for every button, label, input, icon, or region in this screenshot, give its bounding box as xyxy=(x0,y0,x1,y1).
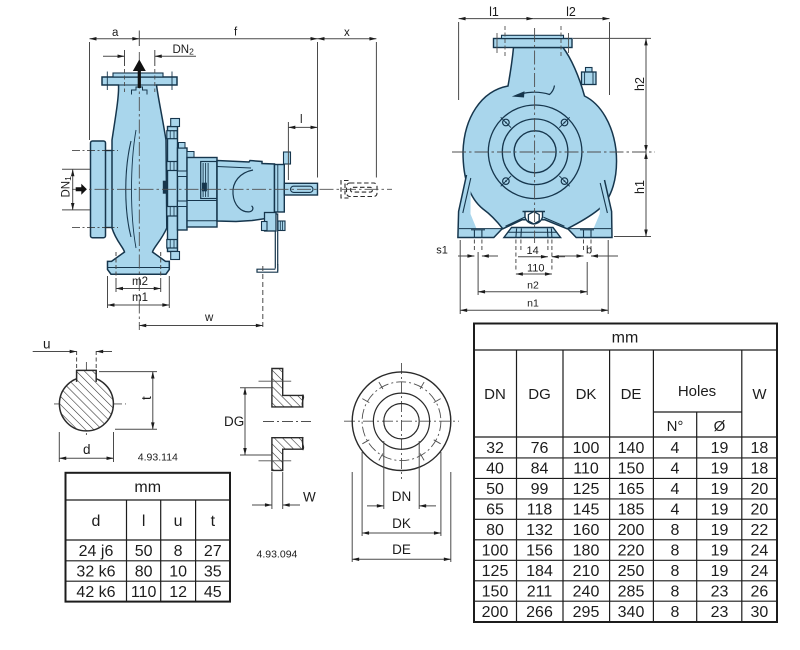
svg-text:184: 184 xyxy=(526,563,553,580)
svg-text:DN1: DN1 xyxy=(61,176,74,198)
svg-text:DG: DG xyxy=(528,386,551,403)
svg-text:Holes: Holes xyxy=(678,383,716,400)
svg-text:f: f xyxy=(234,27,238,39)
svg-text:19: 19 xyxy=(711,502,729,519)
svg-text:14: 14 xyxy=(527,245,539,257)
svg-text:n2: n2 xyxy=(527,280,539,292)
svg-text:22: 22 xyxy=(751,522,769,539)
svg-text:m1: m1 xyxy=(132,292,148,304)
svg-text:99: 99 xyxy=(531,481,549,498)
svg-text:132: 132 xyxy=(526,522,553,539)
svg-text:200: 200 xyxy=(482,604,509,621)
svg-text:19: 19 xyxy=(711,563,729,580)
svg-text:t: t xyxy=(139,396,154,400)
svg-text:118: 118 xyxy=(527,502,553,519)
svg-text:32: 32 xyxy=(486,440,504,457)
svg-text:50: 50 xyxy=(135,543,153,560)
svg-text:4: 4 xyxy=(671,502,680,519)
svg-text:250: 250 xyxy=(618,563,645,580)
svg-text:8: 8 xyxy=(174,543,183,560)
svg-text:DG: DG xyxy=(224,414,244,429)
svg-text:35: 35 xyxy=(204,564,222,581)
svg-text:h2: h2 xyxy=(633,77,647,91)
svg-text:19: 19 xyxy=(711,461,729,478)
svg-text:8: 8 xyxy=(671,563,680,580)
svg-text:19: 19 xyxy=(711,543,729,560)
svg-text:W: W xyxy=(752,386,767,403)
svg-text:80: 80 xyxy=(486,522,504,539)
svg-text:140: 140 xyxy=(618,440,645,457)
svg-text:8: 8 xyxy=(671,604,680,621)
svg-text:23: 23 xyxy=(711,604,729,621)
svg-text:266: 266 xyxy=(526,604,553,621)
svg-text:32 k6: 32 k6 xyxy=(76,564,115,581)
svg-text:DK: DK xyxy=(576,386,597,403)
svg-text:20: 20 xyxy=(751,481,769,498)
svg-text:100: 100 xyxy=(573,440,600,457)
svg-text:DN2: DN2 xyxy=(173,44,195,57)
svg-text:125: 125 xyxy=(482,563,509,580)
svg-text:24: 24 xyxy=(751,543,769,560)
svg-text:4.93.114: 4.93.114 xyxy=(138,452,178,464)
svg-text:76: 76 xyxy=(531,440,549,457)
svg-text:u: u xyxy=(174,513,183,530)
svg-text:210: 210 xyxy=(573,563,600,580)
svg-text:mm: mm xyxy=(612,330,639,347)
svg-text:160: 160 xyxy=(573,522,600,539)
svg-text:240: 240 xyxy=(573,584,600,601)
svg-text:Ø: Ø xyxy=(714,418,726,435)
svg-text:150: 150 xyxy=(618,461,645,478)
svg-text:u: u xyxy=(43,337,51,352)
svg-text:30: 30 xyxy=(751,604,769,621)
svg-text:DE: DE xyxy=(392,542,411,557)
svg-text:x: x xyxy=(344,27,350,39)
svg-text:4: 4 xyxy=(671,461,680,478)
svg-text:d: d xyxy=(83,442,91,457)
svg-text:10: 10 xyxy=(169,564,187,581)
svg-text:18: 18 xyxy=(751,440,769,457)
svg-text:s1: s1 xyxy=(436,245,448,257)
svg-text:8: 8 xyxy=(671,522,680,539)
svg-text:340: 340 xyxy=(618,604,645,621)
svg-text:50: 50 xyxy=(486,481,504,498)
svg-text:4: 4 xyxy=(671,440,680,457)
svg-text:200: 200 xyxy=(618,522,645,539)
svg-text:27: 27 xyxy=(204,543,222,560)
svg-text:295: 295 xyxy=(573,604,600,621)
svg-text:W: W xyxy=(303,490,316,505)
svg-text:d: d xyxy=(92,513,101,530)
svg-text:20: 20 xyxy=(751,502,769,519)
svg-text:42 k6: 42 k6 xyxy=(76,584,115,601)
svg-text:l: l xyxy=(142,513,146,530)
svg-text:19: 19 xyxy=(711,440,729,457)
svg-text:18: 18 xyxy=(751,461,769,478)
svg-text:40: 40 xyxy=(486,461,504,478)
svg-text:45: 45 xyxy=(204,584,222,601)
svg-text:100: 100 xyxy=(482,543,509,560)
svg-text:24: 24 xyxy=(751,563,769,580)
svg-text:DN: DN xyxy=(484,386,506,403)
svg-text:65: 65 xyxy=(486,502,504,519)
svg-text:24 j6: 24 j6 xyxy=(79,543,114,560)
svg-text:t: t xyxy=(211,513,216,530)
svg-text:165: 165 xyxy=(618,481,645,498)
svg-text:156: 156 xyxy=(526,543,553,560)
svg-text:110: 110 xyxy=(131,584,157,601)
svg-text:84: 84 xyxy=(531,461,549,478)
svg-text:185: 185 xyxy=(618,502,645,519)
svg-text:w: w xyxy=(204,312,214,324)
svg-text:26: 26 xyxy=(751,584,769,601)
svg-text:l2: l2 xyxy=(566,5,576,19)
svg-text:150: 150 xyxy=(482,584,509,601)
svg-text:23: 23 xyxy=(711,584,729,601)
svg-text:110: 110 xyxy=(573,461,599,478)
svg-text:4: 4 xyxy=(671,481,680,498)
svg-text:a: a xyxy=(112,27,119,39)
svg-text:19: 19 xyxy=(711,481,729,498)
svg-text:125: 125 xyxy=(573,481,600,498)
svg-text:220: 220 xyxy=(618,543,645,560)
svg-text:mm: mm xyxy=(134,479,161,496)
svg-text:80: 80 xyxy=(135,564,153,581)
svg-text:285: 285 xyxy=(618,584,645,601)
svg-text:l: l xyxy=(300,114,303,126)
svg-text:m2: m2 xyxy=(132,276,148,288)
svg-text:8: 8 xyxy=(671,543,680,560)
svg-text:h1: h1 xyxy=(633,180,647,194)
svg-text:19: 19 xyxy=(711,522,729,539)
svg-text:211: 211 xyxy=(527,584,553,601)
svg-text:b: b xyxy=(586,245,592,257)
svg-text:8: 8 xyxy=(671,584,680,601)
svg-text:4.93.094: 4.93.094 xyxy=(257,549,298,561)
svg-text:DK: DK xyxy=(392,516,411,531)
svg-text:N°: N° xyxy=(667,418,684,435)
svg-text:DN: DN xyxy=(392,489,412,504)
svg-text:n1: n1 xyxy=(527,298,539,310)
svg-text:l1: l1 xyxy=(489,5,499,19)
svg-text:12: 12 xyxy=(169,584,187,601)
svg-text:145: 145 xyxy=(573,502,600,519)
svg-text:110: 110 xyxy=(527,263,545,275)
svg-text:180: 180 xyxy=(573,543,600,560)
svg-text:DE: DE xyxy=(621,386,642,403)
